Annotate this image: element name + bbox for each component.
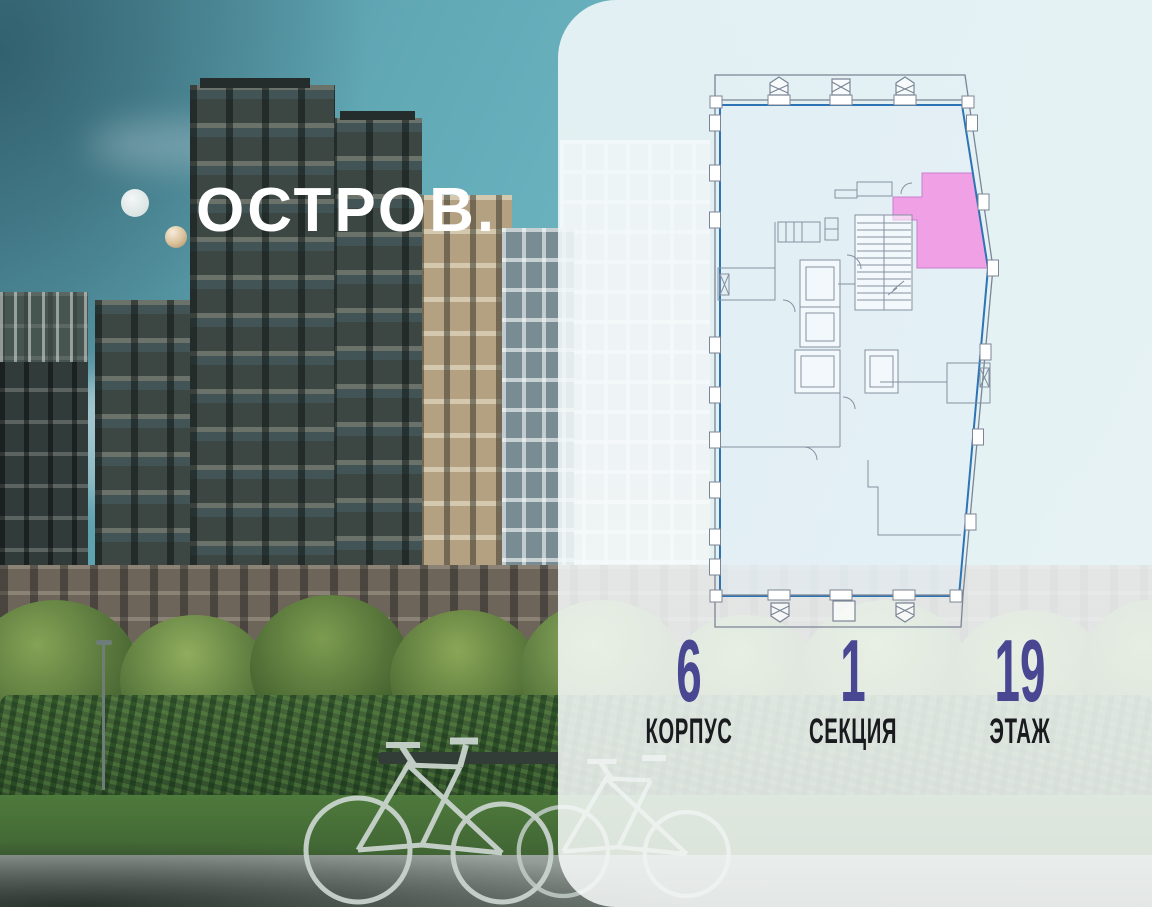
vent-shaft-icon: [771, 603, 789, 622]
vent-shaft-icons-bottom: [771, 601, 914, 622]
shaft-box: [833, 601, 855, 621]
street-lamp: [102, 645, 105, 790]
app-root: ОСТРОВ.: [0, 0, 1152, 907]
street-lamp-head: [96, 640, 112, 645]
vent-shaft-icon: [896, 603, 914, 622]
brand-name: ОСТРОВ.: [196, 180, 497, 242]
stats-row: 6 КОРПУС 1 СЕКЦИЯ 19 ЭТАЖ: [558, 636, 1152, 756]
floor-plan: [684, 62, 1004, 642]
stat-sekciya-value: 1: [796, 636, 910, 706]
roof-cap: [340, 111, 415, 120]
roof-cap: [200, 78, 310, 88]
vent-shaft-icon: [896, 77, 914, 95]
stat-etazh-value: 19: [963, 636, 1077, 706]
stat-etazh-label: ЭТАЖ: [956, 712, 1084, 752]
vent-shaft-icon: [832, 79, 850, 95]
info-panel: 6 КОРПУС 1 СЕКЦИЯ 19 ЭТАЖ: [558, 0, 1152, 907]
vent-shaft-icons-top: [770, 77, 914, 95]
building-tower-far-left-roof: [0, 292, 88, 362]
stat-korpus-value: 6: [632, 636, 746, 706]
logo-dot-icon: [165, 226, 187, 248]
stat-sekciya-label: СЕКЦИЯ: [789, 712, 917, 752]
logo-torus-hole: [121, 189, 149, 217]
stat-korpus-label: КОРПУС: [625, 712, 753, 752]
stat-etazh: 19 ЭТАЖ: [910, 636, 1130, 752]
vent-shaft-icon: [770, 77, 788, 95]
